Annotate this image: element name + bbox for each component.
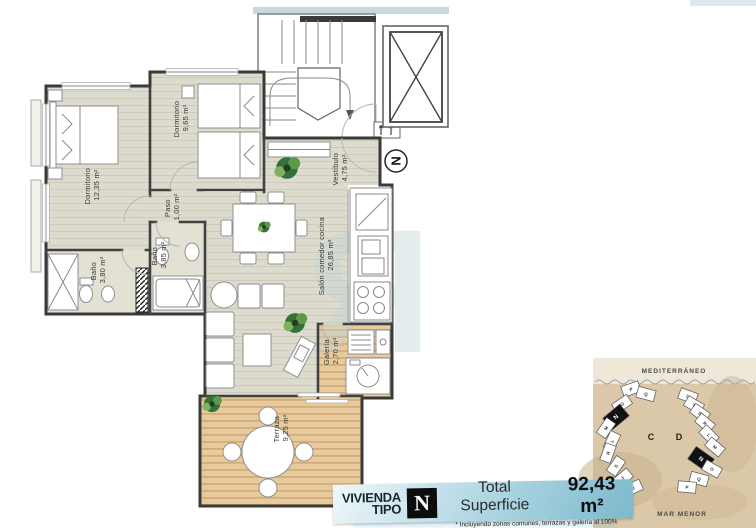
sink-icon bbox=[185, 243, 199, 261]
stairwell bbox=[258, 14, 400, 138]
svg-text:N: N bbox=[389, 156, 404, 165]
room-label-dormitorio-1: Dormitorio 12,35 m² bbox=[83, 166, 101, 205]
room-label-bano-1: Baño 3,80 m² bbox=[89, 256, 107, 283]
block-c-label: C bbox=[648, 432, 655, 442]
floorplan-svg: R bbox=[0, 0, 756, 528]
svg-text:P: P bbox=[685, 485, 688, 490]
single-bed-icon bbox=[198, 132, 260, 178]
wardrobe-icon bbox=[268, 142, 330, 157]
site-unit: P bbox=[678, 481, 697, 494]
ledge bbox=[31, 100, 41, 166]
utility-sink-icon bbox=[348, 330, 390, 354]
top-right-accent-band bbox=[690, 0, 756, 6]
sea-label: MEDITERRÁNEO bbox=[642, 366, 707, 375]
ledge bbox=[31, 180, 41, 272]
washing-machine-icon bbox=[346, 358, 390, 394]
room-label-vestibulo: Vestíbulo 4,75 m² bbox=[331, 151, 349, 186]
bathtub-icon bbox=[153, 276, 203, 310]
north-arrow-icon: N bbox=[385, 150, 407, 172]
type-letter-badge: N bbox=[407, 487, 438, 518]
top-accent-band bbox=[253, 7, 449, 14]
superficie-label: Total Superficie bbox=[443, 477, 547, 515]
room-label-galeria: Galería 2,70 m² bbox=[322, 337, 340, 365]
mar-menor-label: MAR MENOR bbox=[657, 511, 707, 518]
room-label-paso: Paso 1,00 m² bbox=[163, 193, 181, 220]
nightstand bbox=[182, 86, 194, 98]
info-bar: VIVIENDA TIPO N Total Superficie 92,43 m… bbox=[333, 479, 634, 524]
room-label-terraza: Terraza 9,25 m² bbox=[272, 414, 290, 443]
vivienda-tipo-label: VIVIENDA TIPO bbox=[337, 491, 401, 516]
block-d-label: D bbox=[676, 432, 683, 442]
elevator bbox=[383, 26, 448, 127]
duct-shaft bbox=[136, 268, 148, 312]
room-label-bano-2: Baño 3,85 m² bbox=[150, 241, 168, 268]
single-bed-icon bbox=[198, 84, 260, 128]
toilet-icon bbox=[80, 278, 94, 303]
bidet-icon bbox=[102, 286, 115, 302]
superficie-value: 92,43 m² bbox=[554, 473, 629, 518]
shower-icon bbox=[48, 254, 78, 310]
floorplan-page: R bbox=[0, 0, 756, 528]
kitchen-counter bbox=[350, 188, 392, 322]
